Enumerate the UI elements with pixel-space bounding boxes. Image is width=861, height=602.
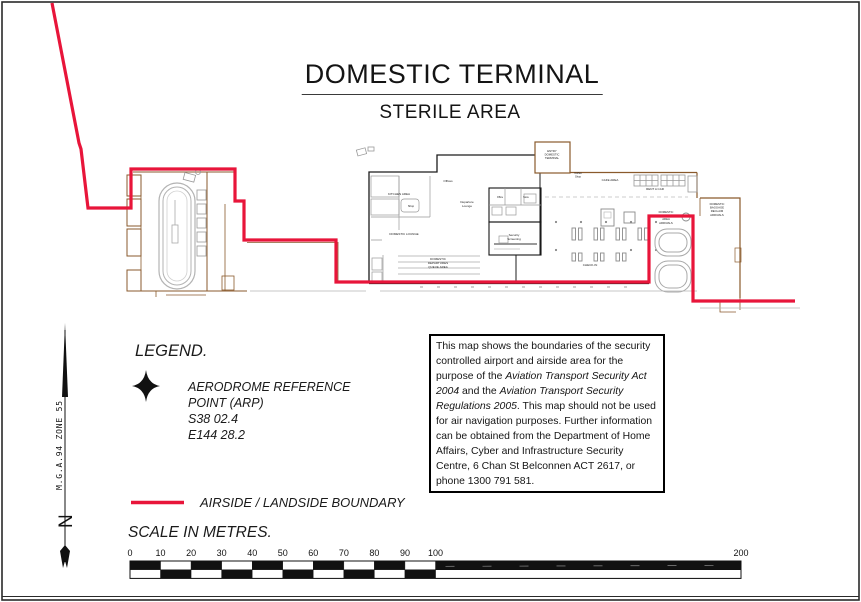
map-label: CHECK-IN xyxy=(583,263,598,267)
scale-bar-cell xyxy=(344,561,375,570)
map-label: DOMESTICDEPARTURESQUEUE AREA xyxy=(428,257,448,269)
scale-tick-label: 90 xyxy=(400,548,410,558)
map-label: DOMESTIC LOUNGE xyxy=(389,232,418,236)
map-label: KITCHEN AREA xyxy=(388,192,410,196)
notice-text-segment: . This map should not be used for air na… xyxy=(436,401,656,487)
scale-tick-label: 80 xyxy=(369,548,379,558)
north-letter: N xyxy=(56,514,77,528)
scale-tick-label: 70 xyxy=(339,548,349,558)
scale-bar-cell xyxy=(283,561,314,570)
scale-bar-cell xyxy=(191,570,222,579)
scale-tick-label: 200 xyxy=(733,548,748,558)
scale-tick-label: 50 xyxy=(278,548,288,558)
scale-tick-label: 40 xyxy=(247,548,257,558)
map-label: Shop xyxy=(408,204,415,208)
scale-tick-label: 10 xyxy=(156,548,166,558)
notice-text: This map shows the boundaries of the sec… xyxy=(436,341,656,487)
map-label: Offices xyxy=(443,179,453,183)
scale-tick-label: 20 xyxy=(186,548,196,558)
scale-bar-cell xyxy=(191,561,222,570)
scale-bar-cell xyxy=(222,561,253,570)
map-label: Office xyxy=(497,196,504,199)
scale-bar-cell xyxy=(222,570,253,579)
scale-bar-cell xyxy=(283,570,314,579)
arp-longitude: E144 28.2 xyxy=(188,427,351,443)
scale-bar-cell xyxy=(313,570,344,579)
scale-bar-cell xyxy=(313,561,344,570)
map-label: CAFE AREA xyxy=(602,178,619,182)
map-label: RENT A CAR xyxy=(646,187,665,191)
arp-latitude: S38 02.4 xyxy=(188,411,351,427)
scale-bar-cell xyxy=(374,570,405,579)
scale-heading: SCALE IN METRES. xyxy=(128,524,272,542)
scale-bar-cell xyxy=(161,561,192,570)
legend-heading: LEGEND. xyxy=(135,342,207,361)
page-subtitle: STERILE AREA xyxy=(379,102,520,124)
arp-legend-text: AERODROME REFERENCE POINT (ARP) S38 02.4… xyxy=(188,379,351,443)
title-block: DOMESTIC TERMINAL xyxy=(302,59,603,95)
page-title: DOMESTIC TERMINAL xyxy=(302,59,603,95)
map-label: Store xyxy=(523,196,529,199)
scale-bar-cell xyxy=(405,561,436,570)
map-sheet: KITCHEN AREAOfficesDepartureLoungeShopDO… xyxy=(0,0,861,602)
scale-bar-cell xyxy=(252,570,283,579)
arp-label-line1: AERODROME REFERENCE xyxy=(188,379,351,395)
map-label: DepartureLounge xyxy=(460,200,474,208)
scale-tick-label: 30 xyxy=(217,548,227,558)
scale-bar-cell xyxy=(344,570,375,579)
boundary-legend-label: AIRSIDE / LANDSIDE BOUNDARY xyxy=(200,495,405,510)
scale-tick-label: 0 xyxy=(127,548,132,558)
scale-tick-label: 60 xyxy=(308,548,318,558)
scale-bar-cell xyxy=(405,570,436,579)
scale-bar-cell xyxy=(436,561,742,570)
grid-zone-label: M.G.A.94 ZONE 55 xyxy=(55,400,64,490)
scale-bar-cell xyxy=(130,561,161,570)
scale-bar-cell xyxy=(161,570,192,579)
notice-text-segment: and the xyxy=(459,386,499,397)
notice-box: This map shows the boundaries of the sec… xyxy=(429,334,665,493)
scale-bar-cell xyxy=(130,570,161,579)
map-label: SecurityScreening xyxy=(507,233,521,241)
scale-tick-label: 100 xyxy=(428,548,443,558)
arp-label-line2: POINT (ARP) xyxy=(188,395,351,411)
map-label: DOMESTICBAGGAGERECLAIMARRIVALS xyxy=(710,202,725,217)
scale-bar-cell xyxy=(252,561,283,570)
scale-bar-cell xyxy=(436,570,742,579)
scale-bar-cell xyxy=(374,561,405,570)
